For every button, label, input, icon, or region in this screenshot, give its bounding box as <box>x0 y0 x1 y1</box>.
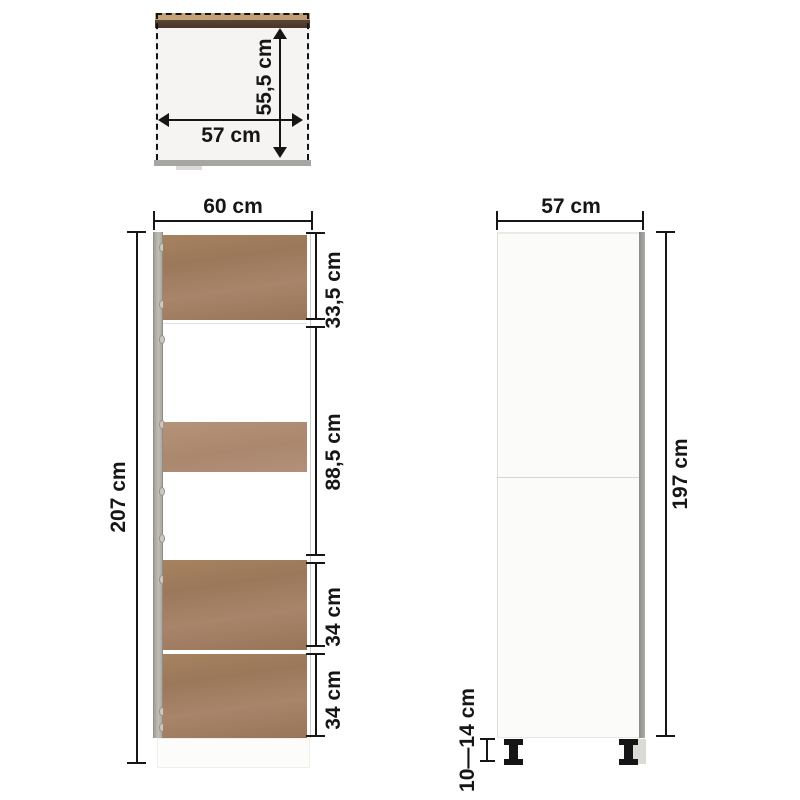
dim-tick <box>496 211 498 230</box>
section-label-4: 34 cm <box>322 670 346 730</box>
dim-tick <box>127 231 146 233</box>
section-label-3: 34 cm <box>322 587 346 647</box>
dim-tick <box>306 554 325 556</box>
diagram-canvas: 55,5 cm 57 cm 60 cm 207 <box>0 0 800 800</box>
top-view-depth-label: 55,5 cm <box>253 38 277 115</box>
top-view-width-arrow-line <box>166 119 295 121</box>
dim-tick <box>306 562 325 564</box>
dim-tick <box>127 762 146 764</box>
dim-tick <box>656 735 675 737</box>
front-view-right-edge-line <box>310 232 311 738</box>
dim-tick <box>311 211 313 230</box>
top-view-depth-arrow-line <box>279 36 281 150</box>
dim-tick <box>306 653 325 655</box>
dim-tick <box>642 211 644 230</box>
front-height-label: 207 cm <box>107 461 131 532</box>
section-dim-line-4 <box>315 654 317 737</box>
feet-dim-line <box>486 739 488 762</box>
front-width-dim-line <box>154 220 312 222</box>
hinge-icon <box>159 487 165 496</box>
hinge-icon <box>159 534 165 543</box>
arrow-down-icon <box>273 147 287 158</box>
side-view-divider-line <box>497 477 640 478</box>
side-view-body <box>497 232 645 738</box>
dim-tick <box>306 326 325 328</box>
side-height-dim-line <box>665 232 667 737</box>
front-view-niche-back-panel <box>163 422 307 472</box>
dim-tick <box>656 231 675 233</box>
section-dim-line-2 <box>315 327 317 556</box>
section-dim-line-3 <box>315 563 317 647</box>
section-label-2: 88,5 cm <box>322 413 346 490</box>
dim-tick <box>306 232 325 234</box>
front-view-middle-door <box>163 560 307 650</box>
arrow-right-icon <box>292 113 303 127</box>
top-view-wall-bracket <box>176 166 202 170</box>
dim-tick <box>306 735 325 737</box>
section-dim-line-1 <box>315 233 317 320</box>
adjustable-foot-icon <box>504 739 523 765</box>
arrow-up-icon <box>273 28 287 39</box>
front-view-plinth <box>157 738 310 768</box>
adjustable-foot-icon <box>619 739 638 765</box>
side-view-front-edge-strip <box>639 232 645 738</box>
front-view-bottom-door <box>163 654 307 738</box>
section-label-1: 33,5 cm <box>322 251 346 328</box>
top-view-width-label: 57 cm <box>201 124 261 148</box>
front-view-top-door <box>163 235 307 320</box>
side-depth-dim-line <box>497 220 643 222</box>
front-height-dim-line <box>136 232 138 764</box>
feet-height-label: 10—14 cm <box>456 688 480 792</box>
side-depth-label: 57 cm <box>541 195 601 219</box>
dim-tick <box>153 211 155 230</box>
arrow-left-icon <box>158 113 169 127</box>
side-height-label: 197 cm <box>669 438 693 509</box>
front-view-shelf-line <box>163 323 307 324</box>
dim-tick <box>480 760 495 762</box>
hinge-icon <box>159 335 165 344</box>
dim-tick <box>480 738 495 740</box>
front-width-label: 60 cm <box>203 195 263 219</box>
